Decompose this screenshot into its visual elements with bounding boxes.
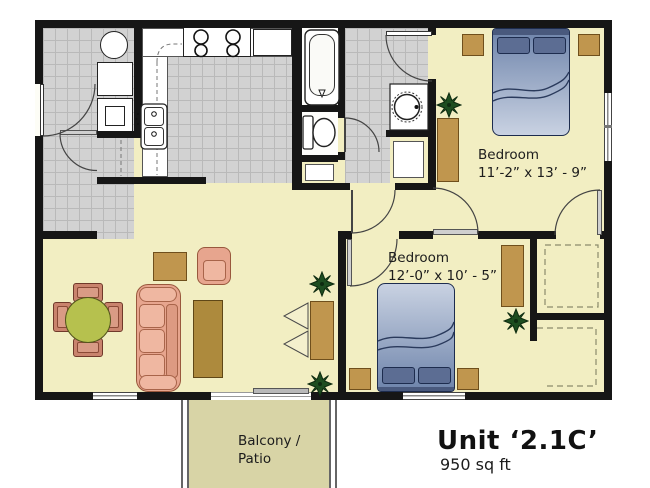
balcony-rail-left xyxy=(181,400,189,488)
bed1-pillow-right xyxy=(533,37,566,54)
wall-toilet-closet xyxy=(302,155,338,162)
front-door-leaf xyxy=(40,84,44,136)
balcony-label-line2: Patio xyxy=(238,450,300,468)
balcony-label-line1: Balcony / xyxy=(238,432,300,450)
bedroom1-window-divider xyxy=(604,125,612,128)
toilet-room-floor xyxy=(302,112,338,155)
stove xyxy=(183,26,251,57)
bedroom1-label-block: Bedroom 11’-2” x 13’ - 9” xyxy=(478,146,587,182)
entry-closet-door-leaf xyxy=(60,130,97,135)
bed2-pillow-right xyxy=(418,367,451,384)
wall-tub-toilet xyxy=(302,105,338,112)
tub-room-floor xyxy=(302,28,338,105)
wall-hall-seg1 xyxy=(338,231,352,239)
bed1-closet-door-leaf xyxy=(597,190,602,235)
wall-tub-divider-post xyxy=(338,152,345,160)
wall-hall-seg3 xyxy=(478,231,556,239)
floor-plan-canvas: Bedroom 11’-2” x 13’ - 9” Bedroom 12’-0”… xyxy=(0,0,650,488)
wall-closet-divider xyxy=(530,313,604,320)
bedroom1-label: Bedroom xyxy=(478,146,587,164)
wall-entry-bottom xyxy=(35,231,97,239)
sofa-armrest-top xyxy=(139,287,177,302)
bed1-nightstand-left xyxy=(462,34,484,56)
bed1-dresser xyxy=(437,118,459,182)
balcony-label-block: Balcony / Patio xyxy=(238,432,300,468)
wall-vanity-closet-top xyxy=(386,130,436,137)
wall-kitchen-stub xyxy=(97,177,206,184)
bed2-dresser xyxy=(501,245,524,307)
bedroom1-door-leaf xyxy=(433,229,478,235)
bed2-nightstand-left xyxy=(349,368,371,390)
balcony-rail-right xyxy=(329,400,337,488)
refrigerator xyxy=(253,29,292,56)
dryer xyxy=(97,62,133,96)
tv-console xyxy=(310,301,334,360)
bedroom2-label: Bedroom xyxy=(388,249,497,267)
bed2-nightstand-right xyxy=(457,368,479,390)
sofa-back xyxy=(166,304,178,378)
wall-living-bed2 xyxy=(338,239,346,392)
washer xyxy=(100,31,128,59)
wall-bath-bottom-right xyxy=(395,183,436,190)
unit-title: Unit ‘2.1C’ xyxy=(437,426,598,456)
bed2-headboard xyxy=(378,387,455,392)
bed1-pillow-left xyxy=(497,37,530,54)
wall-kitchen-bath xyxy=(292,28,302,190)
side-table xyxy=(153,252,187,281)
bed1-nightstand-right xyxy=(578,34,600,56)
wall-bed2-closets xyxy=(530,239,537,341)
linen-closet-a-shelf xyxy=(305,164,334,181)
bedroom1-dimensions: 11’-2” x 13’ - 9” xyxy=(478,164,587,182)
bathroom-bed1-door-leaf xyxy=(386,31,432,36)
sofa xyxy=(136,284,181,392)
wall-laundry-closet-top xyxy=(97,131,142,138)
sofa-armrest-bottom xyxy=(139,375,177,390)
stacked-appliance-door xyxy=(105,106,125,126)
bed-2 xyxy=(377,283,455,392)
sofa-cushion-1 xyxy=(139,304,165,328)
wall-bath-bottom-left xyxy=(292,183,350,190)
wall-exterior-right xyxy=(604,20,612,400)
bedroom2-door-leaf xyxy=(347,239,352,286)
armchair xyxy=(197,247,231,285)
wall-entry-kitchen xyxy=(134,28,142,135)
bedroom2-dimensions: 12’-0” x 10’ - 5” xyxy=(388,267,497,285)
sofa-cushion-2 xyxy=(139,329,165,353)
bedroom2-window xyxy=(403,392,465,400)
wall-exterior-left xyxy=(35,20,43,400)
bedroom2-label-block: Bedroom 12’-0” x 10’ - 5” xyxy=(388,249,497,285)
wall-tub-divider xyxy=(338,28,345,118)
patio-sliding-door-panel xyxy=(253,388,309,394)
dining-table xyxy=(65,297,111,343)
coffee-table xyxy=(193,300,223,378)
bed1-headboard xyxy=(493,29,570,35)
bed2-pillow-left xyxy=(382,367,415,384)
living-room-window xyxy=(93,392,137,400)
wall-exterior-top xyxy=(35,20,612,28)
unit-area: 950 sq ft xyxy=(440,455,511,474)
linen-closet-b-shelf xyxy=(393,141,424,178)
bed-1 xyxy=(492,28,570,136)
armchair-seat xyxy=(203,260,226,281)
wall-hall-seg2 xyxy=(399,231,433,239)
